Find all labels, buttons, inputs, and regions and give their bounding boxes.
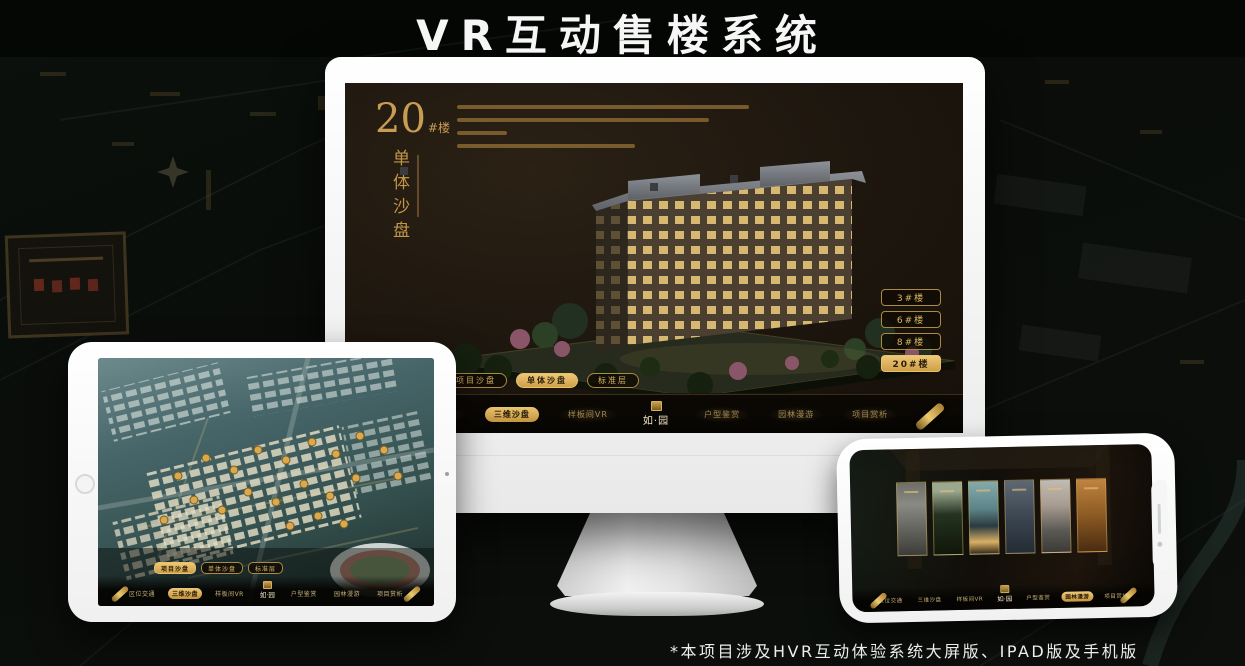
page-title: VR互动售楼系统 [0, 2, 1245, 63]
brand-logo: 如·园 [260, 581, 275, 599]
poster: VR互动售楼系统 20#楼 单体沙盘 [0, 0, 1245, 666]
floor-button-group: 3#楼 6#楼 8#楼 20#楼 [881, 289, 941, 372]
nav-item-showroom-vr[interactable]: 样板间VR [953, 593, 988, 604]
tablet-navbar: 区位交通 三维沙盘 样板间VR 如·园 户型鉴赏 园林漫游 项目赏析 [98, 576, 434, 606]
nav-item-floorplans[interactable]: 户型鉴赏 [1022, 592, 1054, 603]
gallery-card[interactable] [1076, 478, 1108, 553]
tablet-sandbox-tabs: 项目沙盘 单体沙盘 标准层 [154, 562, 283, 574]
gallery-card[interactable] [968, 480, 1000, 555]
home-button[interactable] [75, 474, 95, 494]
nav-item-3d-sandbox[interactable]: 三维沙盘 [168, 588, 202, 599]
floor-button-20[interactable]: 20#楼 [881, 355, 941, 372]
tab-standard-floor[interactable]: 标准层 [587, 373, 639, 388]
monitor-stand-neck [557, 511, 757, 596]
nav-item-3d-sandbox[interactable]: 三维沙盘 [914, 594, 946, 605]
seal-icon [263, 581, 272, 589]
tablet-tab-standard-floor[interactable]: 标准层 [248, 562, 283, 574]
description-text-placeholder [457, 105, 749, 157]
nav-item-3d-sandbox[interactable]: 三维沙盘 [485, 407, 539, 422]
phone-device: 区位交通 三维沙盘 样板间VR 如·园 户型鉴赏 园林漫游 项目赏析 [836, 432, 1178, 623]
gallery-card[interactable] [896, 482, 928, 557]
tablet-screen: 项目沙盘 单体沙盘 标准层 区位交通 三维沙盘 样板间VR 如·园 户型鉴赏 园… [98, 358, 434, 606]
camera-icon [1157, 542, 1162, 547]
footnote: *本项目涉及HVR互动体验系统大屏版、IPAD版及手机版 [670, 638, 1139, 662]
brand-logo-text: 如·园 [643, 412, 669, 427]
sandbox-tabs: 项目沙盘 单体沙盘 标准层 [445, 373, 639, 388]
brand-logo: 如·园 [997, 585, 1012, 603]
floor-button-3[interactable]: 3#楼 [881, 289, 941, 306]
tab-single-sandbox[interactable]: 单体沙盘 [516, 373, 578, 388]
tablet-tab-single-sandbox[interactable]: 单体沙盘 [201, 562, 243, 574]
tablet-device: 项目沙盘 单体沙盘 标准层 区位交通 三维沙盘 样板间VR 如·园 户型鉴赏 园… [68, 342, 456, 622]
speaker-icon [1158, 504, 1162, 534]
nav-item-garden-roam[interactable]: 园林漫游 [769, 407, 823, 422]
building-number: 20 [375, 96, 426, 142]
building-model-image [400, 153, 955, 393]
scroll-menu-icon[interactable] [914, 402, 945, 431]
nav-item-project-gallery[interactable]: 项目赏析 [373, 588, 407, 599]
gallery-card[interactable] [932, 481, 964, 556]
brand-logo: 如·园 [643, 401, 669, 427]
gallery-card[interactable] [1040, 479, 1072, 554]
floor-button-6[interactable]: 6#楼 [881, 311, 941, 328]
brand-logo-text: 如·园 [997, 593, 1012, 603]
nav-item-project-gallery[interactable]: 项目赏析 [843, 407, 897, 422]
nav-item-garden-roam[interactable]: 园林漫游 [330, 588, 364, 599]
camera-icon [445, 472, 449, 476]
tablet-tab-project-sandbox[interactable]: 项目沙盘 [154, 562, 196, 574]
seal-icon [1000, 585, 1009, 593]
gallery-card[interactable] [1004, 479, 1036, 554]
monitor-stand-base [550, 592, 764, 616]
gallery-card-row [896, 478, 1108, 556]
phone-screen: 区位交通 三维沙盘 样板间VR 如·园 户型鉴赏 园林漫游 项目赏析 [849, 444, 1154, 612]
notch [1151, 480, 1169, 570]
building-number-suffix: #楼 [428, 121, 450, 135]
nav-item-garden-roam[interactable]: 园林漫游 [1061, 591, 1093, 602]
building-heading: 20#楼 [375, 99, 450, 139]
nav-item-showroom-vr[interactable]: 样板间VR [211, 588, 248, 599]
nav-item-floorplans[interactable]: 户型鉴赏 [287, 588, 321, 599]
nav-item-showroom-vr[interactable]: 样板间VR [559, 407, 617, 422]
nav-item-floorplans[interactable]: 户型鉴赏 [695, 407, 749, 422]
brand-logo-text: 如·园 [260, 589, 275, 599]
seal-icon [651, 401, 662, 411]
phone-navbar: 区位交通 三维沙盘 样板间VR 如·园 户型鉴赏 园林漫游 项目赏析 [852, 582, 1154, 612]
nav-item-location[interactable]: 区位交通 [125, 588, 159, 599]
floor-button-8[interactable]: 8#楼 [881, 333, 941, 350]
